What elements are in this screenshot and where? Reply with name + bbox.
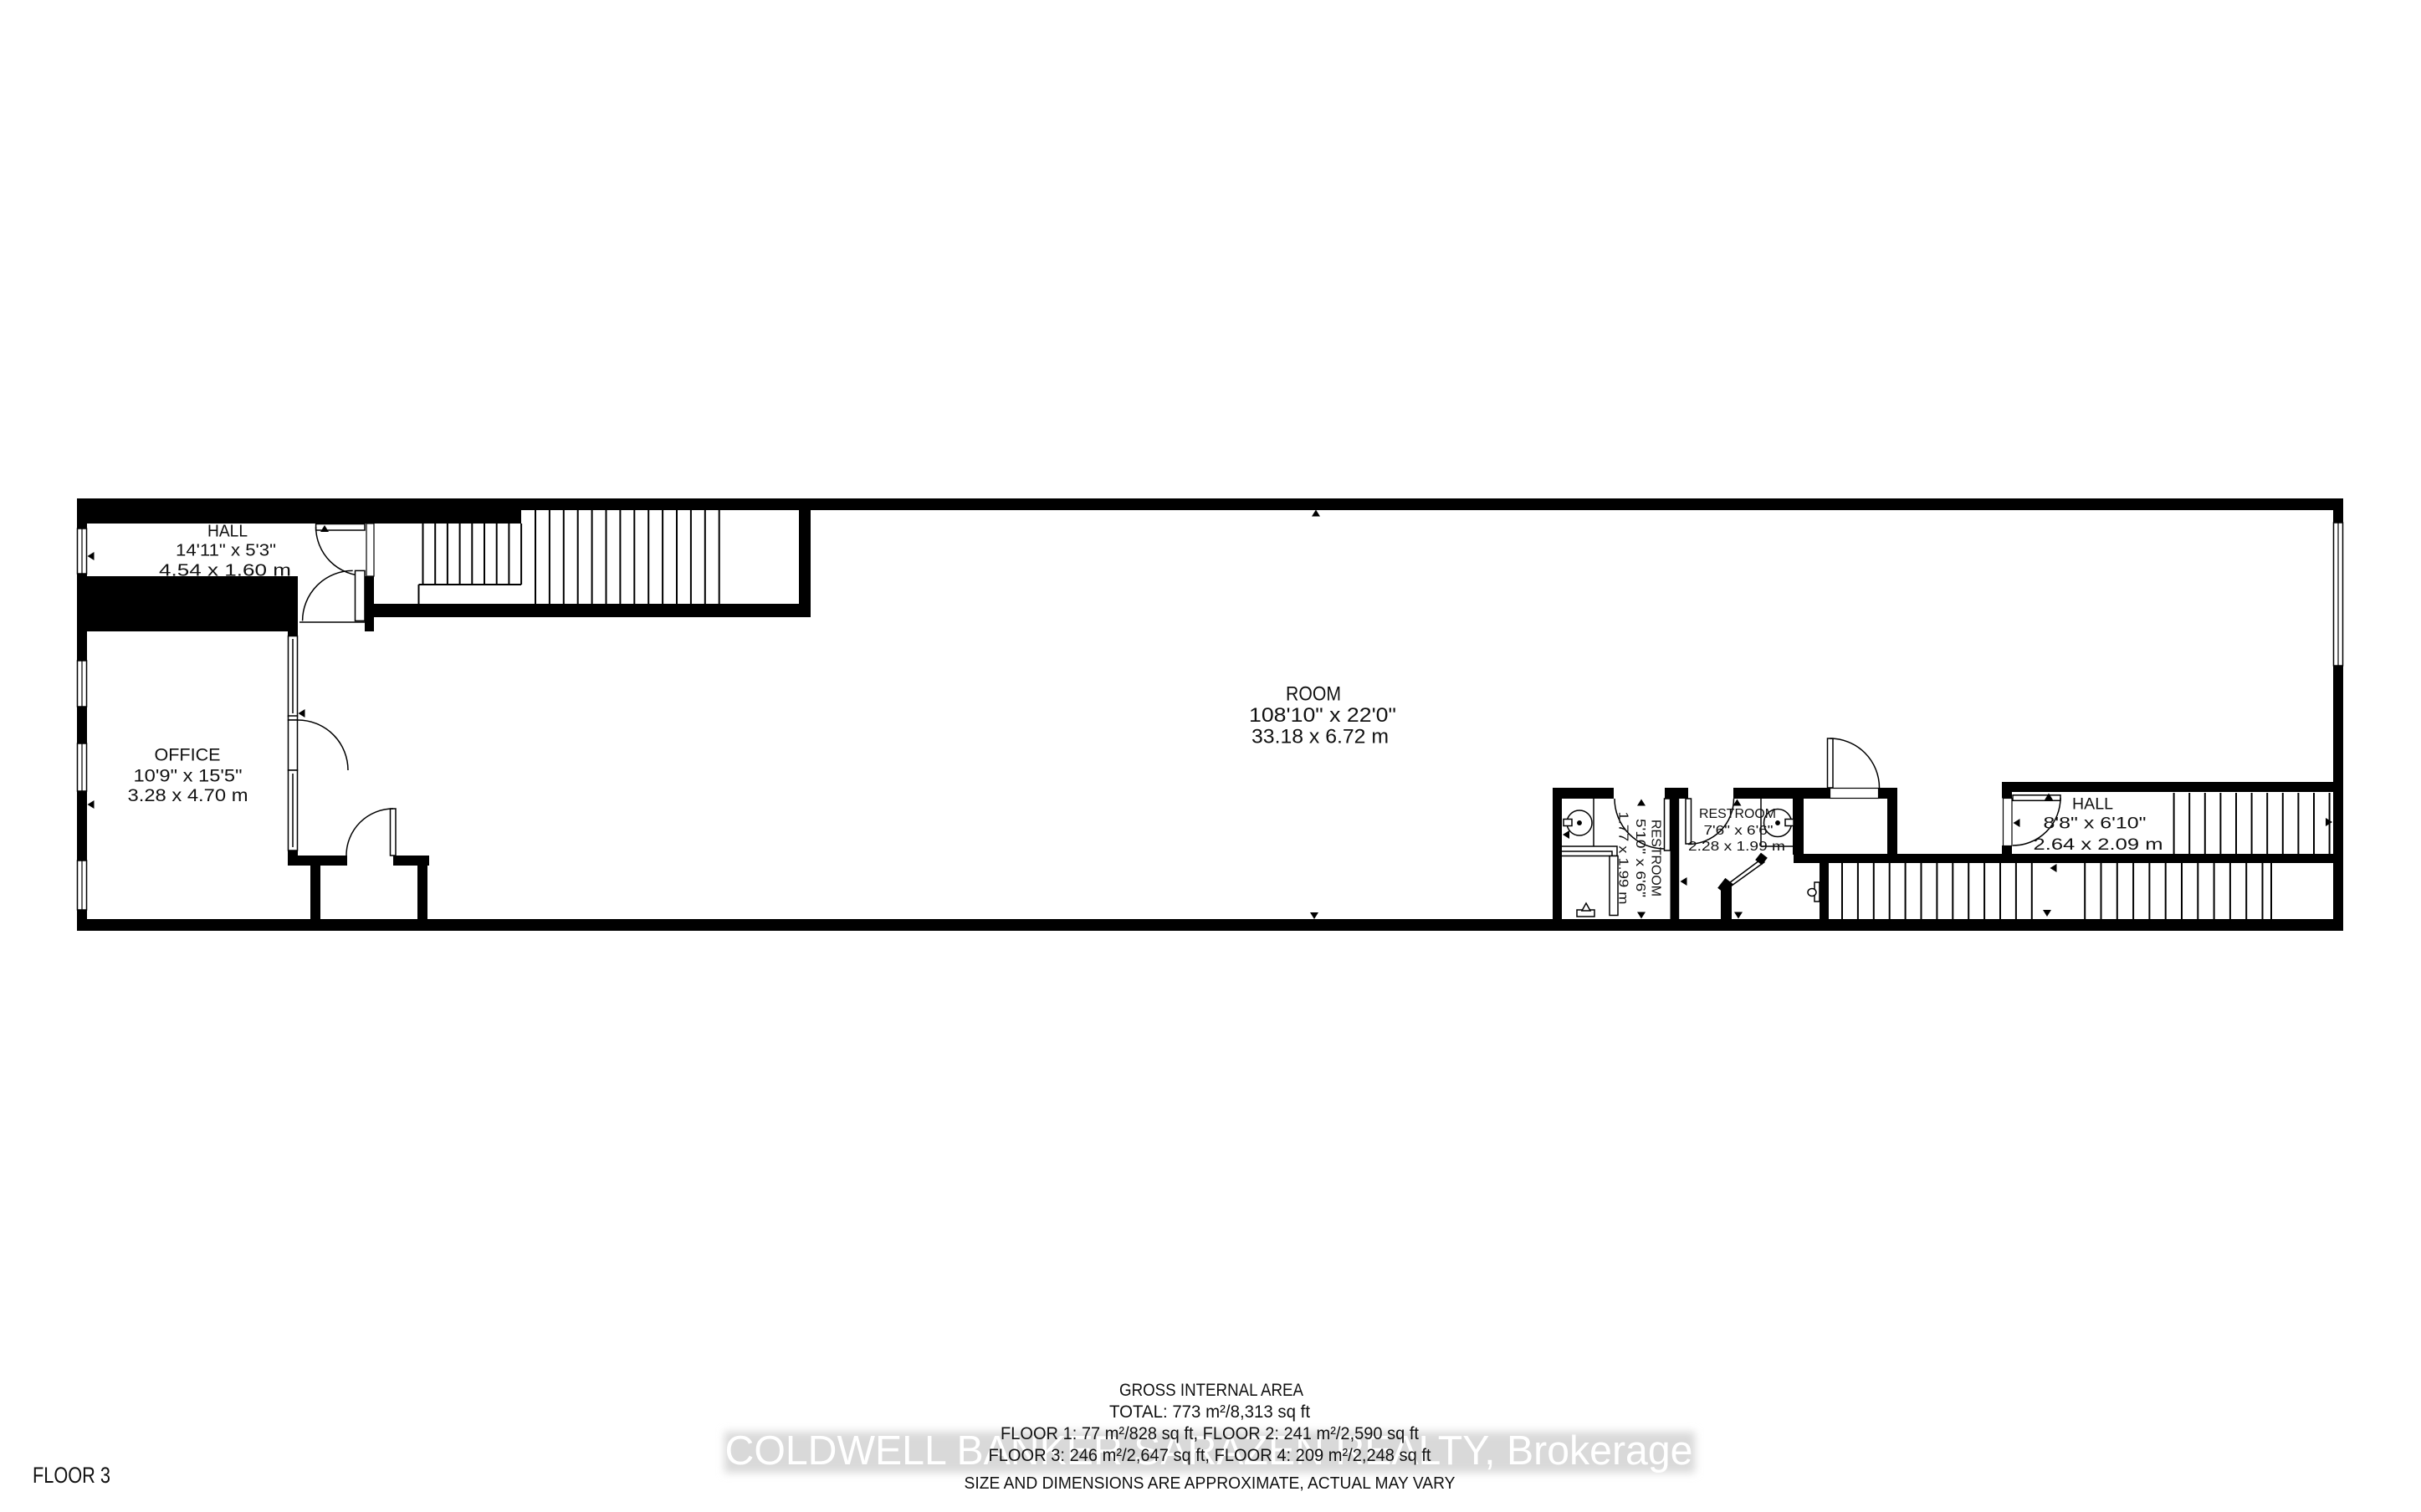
svg-text:FLOOR 1: 77 m²/828 sq ft, FLOO: FLOOR 1: 77 m²/828 sq ft, FLOOR 2: 241 m… <box>1001 1424 1419 1443</box>
svg-text:7'6" x 6'6": 7'6" x 6'6" <box>1704 824 1774 838</box>
svg-text:OFFICE: OFFICE <box>155 746 221 765</box>
svg-text:10'9" x 15'5": 10'9" x 15'5" <box>134 767 243 786</box>
svg-text:1.77 x 1.99 m: 1.77 x 1.99 m <box>1616 812 1630 905</box>
svg-text:FLOOR 3: 246 m²/2,647 sq ft, F: FLOOR 3: 246 m²/2,647 sq ft, FLOOR 4: 20… <box>989 1446 1431 1465</box>
svg-text:33.18 x 6.72 m: 33.18 x 6.72 m <box>1251 726 1389 748</box>
svg-text:HALL: HALL <box>207 523 248 541</box>
svg-text:2.28 x 1.99 m: 2.28 x 1.99 m <box>1688 840 1785 854</box>
svg-text:HALL: HALL <box>2072 796 2113 814</box>
svg-text:14'11" x 5'3": 14'11" x 5'3" <box>176 542 276 560</box>
svg-text:SIZE AND DIMENSIONS ARE APPROX: SIZE AND DIMENSIONS ARE APPROXIMATE, ACT… <box>965 1474 1456 1493</box>
svg-text:ROOM: ROOM <box>1286 683 1341 706</box>
svg-text:4.54 x 1.60 m: 4.54 x 1.60 m <box>159 562 291 580</box>
svg-text:2.64 x 2.09 m: 2.64 x 2.09 m <box>2034 836 2163 854</box>
svg-text:RESTROOM: RESTROOM <box>1699 807 1776 821</box>
svg-text:108'10" x 22'0": 108'10" x 22'0" <box>1249 704 1396 727</box>
svg-text:GROSS INTERNAL AREA: GROSS INTERNAL AREA <box>1119 1381 1303 1400</box>
svg-text:TOTAL: 773 m²/8,313 sq ft: TOTAL: 773 m²/8,313 sq ft <box>1109 1402 1310 1422</box>
svg-text:8'8" x 6'10": 8'8" x 6'10" <box>2044 815 2147 833</box>
svg-text:RESTROOM: RESTROOM <box>1649 820 1663 896</box>
svg-text:3.28 x 4.70 m: 3.28 x 4.70 m <box>128 786 248 805</box>
svg-text:FLOOR 3: FLOOR 3 <box>33 1463 110 1488</box>
svg-text:5'10" x 6'6": 5'10" x 6'6" <box>1633 819 1647 897</box>
